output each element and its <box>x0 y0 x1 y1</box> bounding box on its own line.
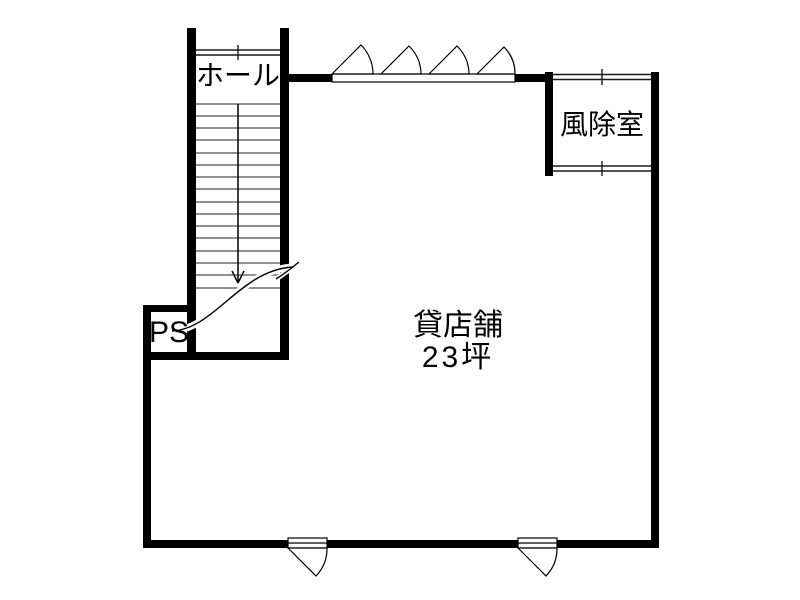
storefront-swing-panel-icon <box>477 47 515 74</box>
shop-area-label: 23坪 <box>422 341 494 374</box>
storefront-opening-sill <box>332 74 515 82</box>
shop-name-label: 貸店舗 <box>413 309 503 342</box>
east-wall <box>651 72 659 548</box>
stairwell-top-window-icon <box>196 45 280 60</box>
storefront-swing-panel-icon <box>381 46 421 74</box>
entrance-door-right-icon <box>518 538 557 576</box>
pipe-space-label: PS <box>149 316 189 349</box>
entrance-door-left-icon <box>288 538 327 576</box>
vestibule-bottom-window-icon <box>553 161 651 176</box>
stair-direction-arrow-icon <box>232 104 244 283</box>
vestibule-left-wall <box>545 72 553 176</box>
south-wall <box>143 540 659 548</box>
hall-label: ホール <box>196 60 280 91</box>
storefront-swing-panel-icon <box>332 45 373 74</box>
vestibule-label: 風除室 <box>560 109 644 140</box>
storefront-opening-group <box>332 45 515 82</box>
vestibule-top-window-icon <box>553 69 651 85</box>
floor-plan-canvas: ホール 風除室 貸店舗 23坪 PS <box>0 0 800 600</box>
north-wall-left-segment <box>289 74 332 82</box>
storefront-swing-panel-icon <box>429 46 469 74</box>
floor-plan-drawing: ホール 風除室 貸店舗 23坪 PS <box>0 0 800 600</box>
stairwell-right-wall <box>280 28 289 360</box>
stairwell-bottom-wall <box>143 352 289 360</box>
